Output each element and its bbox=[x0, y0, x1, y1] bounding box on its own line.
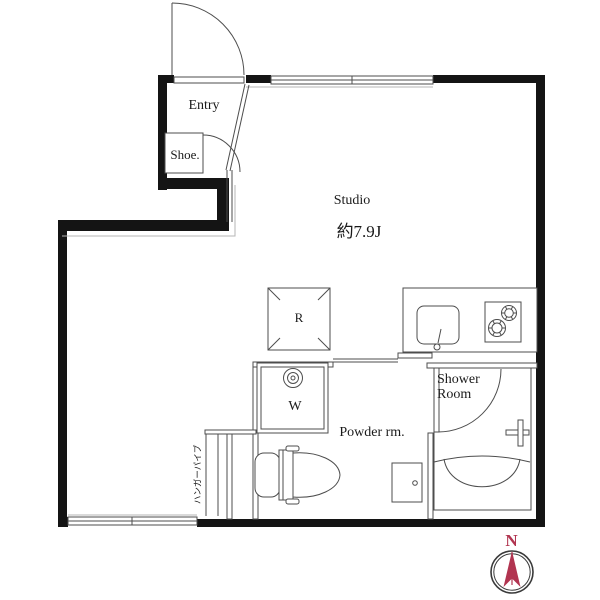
bottom-window bbox=[68, 515, 197, 525]
shower-room-label: ShowerRoom bbox=[437, 373, 507, 402]
powder-cabinet bbox=[392, 463, 422, 502]
toilet bbox=[255, 446, 340, 504]
refrigerator-label: R bbox=[284, 311, 314, 325]
entry-room-label: Entry bbox=[172, 99, 236, 114]
entrance-door bbox=[172, 3, 244, 83]
studio-room-label: Studio 約7.9J bbox=[300, 194, 404, 242]
stove bbox=[485, 302, 521, 342]
floor-plan-drawing bbox=[0, 0, 600, 600]
shower-faucet-icon bbox=[506, 420, 529, 446]
powder-sliding-door bbox=[333, 359, 398, 362]
north-compass-icon bbox=[491, 551, 533, 593]
shower-basin bbox=[434, 456, 530, 487]
top-window bbox=[246, 76, 433, 87]
compass-north-label: N bbox=[498, 532, 525, 550]
hanger-pipe-label: ハンガーパイプ bbox=[195, 439, 204, 509]
hanger-pipe-closet bbox=[205, 430, 256, 519]
studio-area: 約7.9J bbox=[337, 222, 382, 241]
kitchen-sink bbox=[417, 306, 459, 350]
floor-plan: Entry Shoe. Studio 約7.9J R W Powder rm. … bbox=[0, 0, 600, 600]
washing-machine bbox=[257, 363, 328, 433]
powder-room-label: Powder rm. bbox=[320, 426, 424, 441]
washer-label: W bbox=[280, 400, 310, 415]
shoe-cabinet-label: Shoe. bbox=[162, 148, 208, 162]
studio-name: Studio bbox=[334, 193, 371, 208]
